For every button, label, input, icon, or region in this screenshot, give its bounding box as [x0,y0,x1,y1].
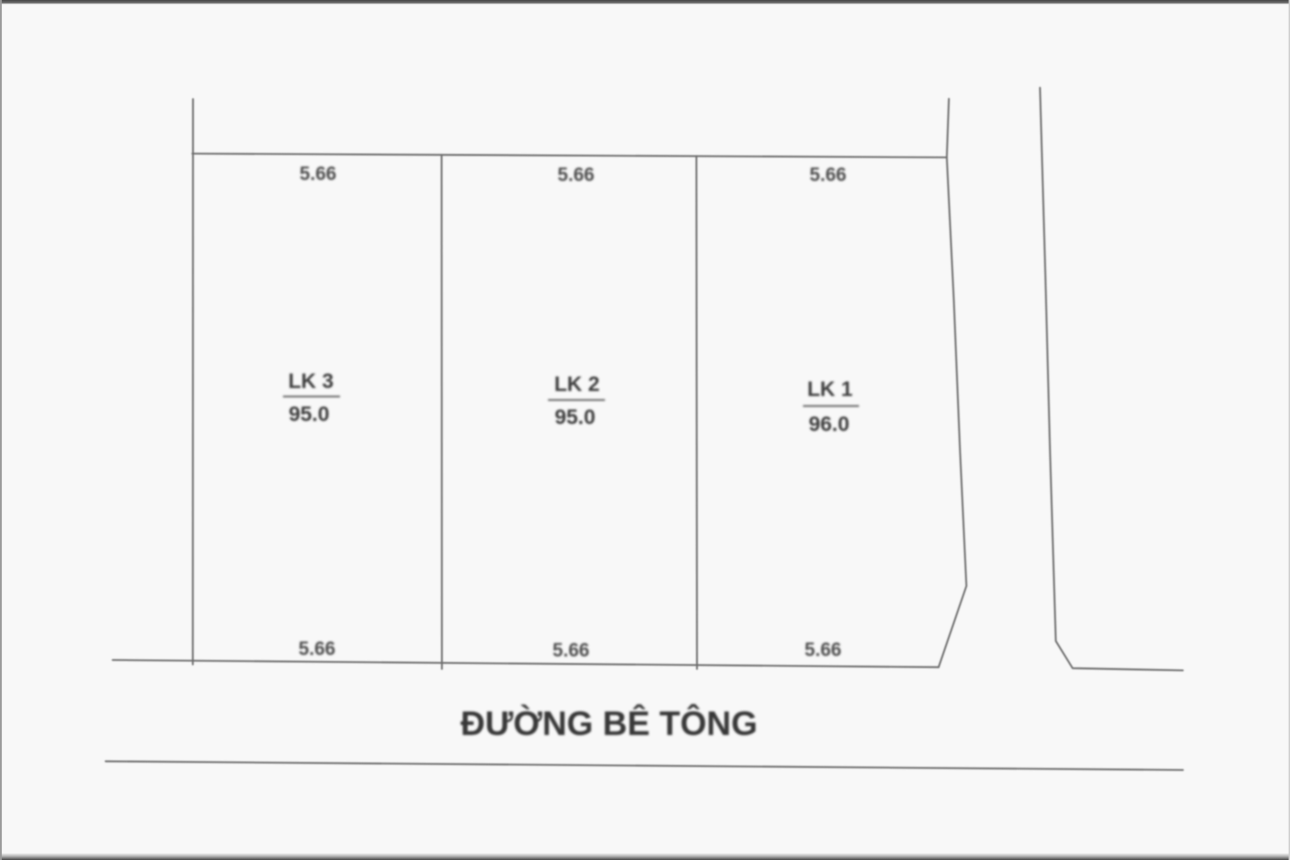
svg-text:ĐƯỜNG BÊ TÔNG: ĐƯỜNG BÊ TÔNG [460,704,757,743]
svg-text:5.66: 5.66 [805,640,842,661]
svg-text:95.0: 95.0 [555,406,596,429]
svg-text:5.66: 5.66 [558,165,595,186]
svg-text:96.0: 96.0 [809,413,850,436]
svg-text:5.66: 5.66 [553,641,590,662]
svg-text:LK 3: LK 3 [288,370,334,393]
svg-text:LK 2: LK 2 [554,373,600,396]
svg-text:LK 1: LK 1 [807,378,853,401]
svg-text:5.66: 5.66 [299,639,336,660]
svg-text:95.0: 95.0 [289,403,330,426]
svg-text:5.66: 5.66 [300,164,337,185]
svg-text:5.66: 5.66 [810,165,847,186]
